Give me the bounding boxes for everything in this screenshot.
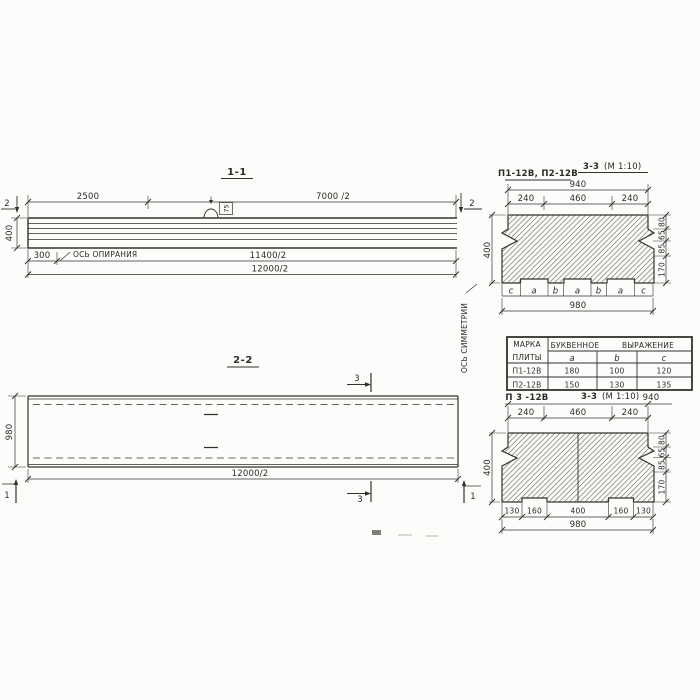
dim-65: 65 bbox=[658, 230, 667, 240]
dim-940: 940 bbox=[570, 180, 587, 190]
marker-label: 3 bbox=[354, 374, 360, 384]
section-3-3-title: 3-3 bbox=[583, 162, 599, 172]
support-axis-leader bbox=[60, 252, 70, 261]
strand-lines bbox=[28, 224, 457, 240]
loop-arc bbox=[204, 209, 218, 218]
dim-170: 170 bbox=[658, 480, 667, 495]
plate-marks-label: П1-12В, П2-12В bbox=[498, 169, 578, 179]
plan-2-2-title: 2-2 bbox=[233, 355, 253, 366]
dim-460: 460 bbox=[570, 408, 587, 418]
artifact-blot bbox=[372, 530, 381, 535]
blueprint-page: 1-1 2500 7000 /2 2 2 bbox=[0, 0, 700, 700]
dim-12000-2: 12000/2 bbox=[232, 469, 269, 479]
view-plan-2-2: 2-2 980 3 3 1 bbox=[2, 355, 481, 505]
dim-400: 400 bbox=[483, 459, 493, 476]
scan-artifact bbox=[372, 530, 438, 536]
section-marker-1-left: 1 bbox=[2, 479, 18, 503]
marker-arrow bbox=[462, 480, 466, 486]
marker-arrow bbox=[365, 382, 371, 386]
support-axis-label: ОСЬ ОПИРАНИЯ bbox=[73, 250, 137, 259]
cell-b: 100 bbox=[610, 367, 625, 376]
marker-label: 1 bbox=[4, 491, 10, 501]
beam-outline bbox=[28, 218, 457, 248]
marker-arrow bbox=[365, 491, 371, 495]
loop-label: 75 bbox=[224, 204, 231, 212]
dim-85: 85 bbox=[658, 460, 667, 470]
symmetry-axis-label: ОСЬ СИММЕТРИИ bbox=[460, 303, 469, 373]
dim-300: 300 bbox=[34, 251, 51, 261]
cell-a: 180 bbox=[565, 367, 580, 376]
cell-b: 130 bbox=[610, 381, 625, 390]
section-marker-3-top: 3 bbox=[347, 373, 371, 392]
marker-label: 1 bbox=[470, 492, 476, 502]
beam-elevation bbox=[28, 218, 457, 248]
dim-240-left: 240 bbox=[518, 408, 535, 418]
artifact-smudge bbox=[398, 535, 438, 536]
header-expression-2: ВЫРАЖЕНИЕ bbox=[622, 341, 674, 350]
header-mark-line1: МАРКА bbox=[513, 340, 541, 349]
dim-160-left: 160 bbox=[527, 507, 542, 516]
lifting-loop: 75 bbox=[204, 197, 233, 219]
dim-400-center: 400 bbox=[571, 507, 586, 516]
dim-2500: 2500 bbox=[77, 192, 99, 202]
cell-a: 150 bbox=[565, 381, 580, 390]
dim-80: 80 bbox=[658, 217, 667, 227]
dim-130-left: 130 bbox=[505, 507, 520, 516]
dim-80: 80 bbox=[658, 435, 667, 445]
section-1-1-title: 1-1 bbox=[227, 167, 247, 178]
table-row-p1: П1-12В 180 100 120 bbox=[512, 367, 671, 376]
slab-plan-outline bbox=[28, 396, 458, 467]
dim-170: 170 bbox=[658, 262, 667, 277]
section-3-3-p3: П 3 -12В 3-3 (М 1:10) 940 240 460 240 40… bbox=[483, 392, 672, 534]
marker-label: 3 bbox=[357, 495, 363, 505]
col-a-header: a bbox=[569, 354, 574, 364]
plate-mark-label: П 3 -12В bbox=[505, 393, 548, 403]
dim-240-left: 240 bbox=[518, 194, 535, 204]
marker-label: 2 bbox=[4, 199, 10, 209]
plan-outline bbox=[28, 396, 458, 467]
technical-drawing-canvas: 1-1 2500 7000 /2 2 2 bbox=[0, 0, 700, 700]
cell-c: 120 bbox=[657, 367, 672, 376]
plan-inner-edges bbox=[28, 399, 458, 465]
dim-240-right: 240 bbox=[622, 408, 639, 418]
slab-cross-section-hatched bbox=[502, 215, 654, 283]
scale-note: (М 1:10) bbox=[602, 392, 639, 402]
letter-b1: b bbox=[553, 287, 558, 297]
dim-400: 400 bbox=[5, 225, 15, 242]
dim-980: 980 bbox=[570, 520, 587, 530]
section-3-3-title: 3-3 bbox=[581, 392, 597, 402]
dim-980: 980 bbox=[570, 301, 587, 311]
symmetry-axis-leader bbox=[466, 284, 477, 293]
dim-980: 980 bbox=[5, 424, 15, 441]
dim-12000-2: 12000/2 bbox=[252, 265, 289, 275]
dim-240-right: 240 bbox=[622, 194, 639, 204]
header-expression-1: БУКВЕННОЕ bbox=[551, 341, 600, 350]
table-row-p2: П2-12В 150 130 135 bbox=[512, 381, 671, 390]
center-marks bbox=[204, 415, 218, 448]
symmetry-axis-callout: ОСЬ СИММЕТРИИ bbox=[460, 284, 477, 373]
letter-c2: c bbox=[641, 287, 646, 297]
letter-a3: a bbox=[618, 287, 623, 297]
cell-c: 135 bbox=[657, 381, 672, 390]
letter-dimension-row: c a b a b a c bbox=[502, 284, 653, 297]
col-c-header: c bbox=[662, 354, 667, 364]
section-marker-2-left: 2 bbox=[1, 196, 19, 213]
marker-label: 2 bbox=[469, 199, 475, 209]
bottom-dimension-row: 130 160 400 160 130 bbox=[499, 503, 656, 520]
dim-460: 460 bbox=[570, 194, 587, 204]
dim-65: 65 bbox=[658, 448, 667, 458]
dim-7000-2: 7000 /2 bbox=[316, 192, 350, 202]
view-section-1-1: 1-1 2500 7000 /2 2 2 bbox=[1, 167, 482, 278]
scale-note: (М 1:10) bbox=[604, 162, 641, 172]
dim-130-right: 130 bbox=[636, 507, 651, 516]
letter-values-table: МАРКА ПЛИТЫ БУКВЕННОЕ ВЫРАЖЕНИЕ a b c П1… bbox=[507, 337, 692, 390]
letter-c1: c bbox=[509, 287, 514, 297]
dim-11400-2: 11400/2 bbox=[250, 251, 287, 261]
marker-arrow bbox=[15, 207, 19, 213]
dim-160-right: 160 bbox=[614, 507, 629, 516]
section-marker-1-right: 1 bbox=[462, 480, 481, 503]
dim-85: 85 bbox=[658, 244, 667, 254]
letter-a1: a bbox=[531, 287, 536, 297]
dim-400: 400 bbox=[483, 242, 493, 259]
col-b-header: b bbox=[614, 354, 619, 364]
hidden-edge-dashed bbox=[33, 405, 454, 459]
marker-arrow bbox=[459, 207, 463, 213]
letter-a2: a bbox=[575, 287, 580, 297]
header-mark-line2: ПЛИТЫ bbox=[512, 353, 541, 362]
section-marker-2-right: 2 bbox=[459, 193, 482, 213]
section-3-3-p1-p2: П1-12В, П2-12В 3-3 (М 1:10) 940 240 460 … bbox=[483, 162, 671, 315]
section-marker-3-bottom: 3 bbox=[347, 481, 371, 505]
letter-b2: b bbox=[596, 287, 601, 297]
row-mark: П2-12В bbox=[512, 381, 541, 390]
row-mark: П1-12В bbox=[512, 367, 541, 376]
